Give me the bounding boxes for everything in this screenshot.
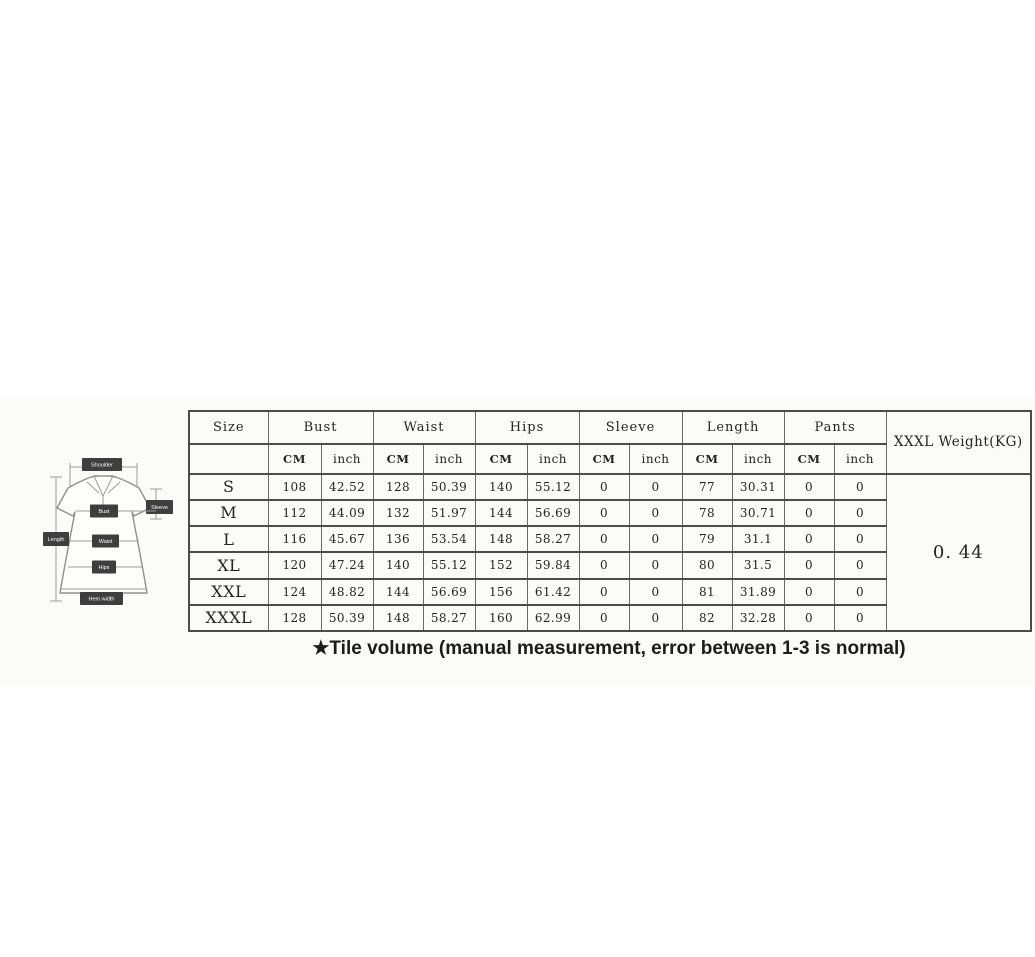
measurement-cell: 32.28 — [732, 605, 784, 631]
length-label: Length — [48, 537, 65, 543]
measurement-cell: 0 — [784, 526, 834, 552]
measurement-cell: 48.82 — [321, 579, 373, 605]
measurement-cell: 140 — [475, 474, 527, 500]
measurement-cell: 0 — [629, 500, 682, 526]
measurement-cell: 148 — [373, 605, 423, 631]
measurement-cell: 81 — [682, 579, 732, 605]
unit-header-cm: CM — [579, 444, 629, 473]
unit-header-inch: inch — [321, 444, 373, 473]
measurement-cell: 82 — [682, 605, 732, 631]
col-header-hips: Hips — [475, 411, 579, 444]
hem-label: Hem width — [89, 596, 115, 602]
unit-header-inch: inch — [732, 444, 784, 473]
measurement-cell: 0 — [579, 552, 629, 578]
col-header-weight: XXXL Weight(KG) — [886, 411, 1031, 474]
measurement-cell: 132 — [373, 500, 423, 526]
measurement-cell: 128 — [373, 474, 423, 500]
size-label: L — [189, 526, 268, 552]
measurement-cell: 59.84 — [527, 552, 579, 578]
measurement-cell: 112 — [268, 500, 321, 526]
measurement-cell: 0 — [629, 552, 682, 578]
col-header-waist: Waist — [373, 411, 475, 444]
header-row-groups: Size Bust Waist Hips Sleeve Length Pants… — [189, 411, 1031, 444]
measurement-cell: 0 — [579, 500, 629, 526]
unit-header-inch: inch — [423, 444, 475, 473]
measurement-cell: 79 — [682, 526, 732, 552]
measurement-cell: 56.69 — [527, 500, 579, 526]
unit-header-inch: inch — [629, 444, 682, 473]
size-label: XXL — [189, 579, 268, 605]
col-header-size: Size — [189, 411, 268, 444]
measurement-cell: 140 — [373, 552, 423, 578]
measurement-cell: 58.27 — [423, 605, 475, 631]
measurement-note: ★Tile volume (manual measurement, error … — [188, 637, 1030, 660]
size-label: XL — [189, 552, 268, 578]
measurement-cell: 51.97 — [423, 500, 475, 526]
measurement-cell: 62.99 — [527, 605, 579, 631]
unit-header-inch: inch — [527, 444, 579, 473]
measurement-cell: 152 — [475, 552, 527, 578]
measurement-cell: 0 — [629, 526, 682, 552]
unit-header-cm: CM — [373, 444, 423, 473]
measurement-cell: 0 — [834, 552, 886, 578]
empty-cell — [189, 444, 268, 473]
measurement-cell: 45.67 — [321, 526, 373, 552]
measurement-cell: 78 — [682, 500, 732, 526]
measurement-cell: 0 — [834, 605, 886, 631]
measurement-cell: 31.1 — [732, 526, 784, 552]
measurement-cell: 144 — [475, 500, 527, 526]
col-header-sleeve: Sleeve — [579, 411, 682, 444]
measurement-cell: 0 — [784, 579, 834, 605]
measurement-cell: 148 — [475, 526, 527, 552]
table-row-s: S 108 42.52 128 50.39 140 55.12 0 0 77 3… — [189, 474, 1031, 500]
col-header-pants: Pants — [784, 411, 886, 444]
measurement-cell: 30.71 — [732, 500, 784, 526]
measurement-cell: 0 — [784, 552, 834, 578]
measurement-cell: 0 — [834, 500, 886, 526]
measurement-cell: 128 — [268, 605, 321, 631]
size-label: S — [189, 474, 268, 500]
size-label: XXXL — [189, 605, 268, 631]
measurement-cell: 0 — [579, 579, 629, 605]
measurement-cell: 55.12 — [527, 474, 579, 500]
garment-diagram: Shoulder Length Sleeve Bust Waist Hips — [40, 443, 185, 621]
unit-header-cm: CM — [475, 444, 527, 473]
measurement-cell: 0 — [784, 500, 834, 526]
measurement-cell: 120 — [268, 552, 321, 578]
measurement-cell: 58.27 — [527, 526, 579, 552]
measurement-cell: 116 — [268, 526, 321, 552]
size-chart-page: Shoulder Length Sleeve Bust Waist Hips — [0, 0, 1035, 957]
bust-label: Bust — [98, 509, 109, 515]
size-chart-table: Size Bust Waist Hips Sleeve Length Pants… — [188, 410, 1032, 632]
measurement-cell: 50.39 — [321, 605, 373, 631]
dress-figure: Shoulder Length Sleeve Bust Waist Hips — [40, 443, 185, 621]
measurement-cell: 0 — [784, 605, 834, 631]
measurement-cell: 0 — [579, 526, 629, 552]
measurement-cell: 0 — [579, 605, 629, 631]
shoulder-label: Shoulder — [91, 462, 113, 468]
measurement-cell: 42.52 — [321, 474, 373, 500]
measurement-cell: 144 — [373, 579, 423, 605]
measurement-cell: 56.69 — [423, 579, 475, 605]
measurement-cell: 47.24 — [321, 552, 373, 578]
measurement-cell: 31.89 — [732, 579, 784, 605]
unit-header-cm: CM — [682, 444, 732, 473]
unit-header-cm: CM — [268, 444, 321, 473]
weight-value-cell: 0. 44 — [886, 474, 1031, 631]
measurement-cell: 0 — [834, 579, 886, 605]
measurement-cell: 108 — [268, 474, 321, 500]
measurement-cell: 61.42 — [527, 579, 579, 605]
hips-label: Hips — [98, 565, 109, 571]
measurement-cell: 124 — [268, 579, 321, 605]
measurement-cell: 160 — [475, 605, 527, 631]
unit-header-cm: CM — [784, 444, 834, 473]
sleeve-label: Sleeve — [151, 505, 168, 511]
measurement-cell: 31.5 — [732, 552, 784, 578]
measurement-cell: 77 — [682, 474, 732, 500]
measurement-cell: 44.09 — [321, 500, 373, 526]
waist-label: Waist — [99, 539, 113, 545]
measurement-cell: 0 — [784, 474, 834, 500]
measurement-cell: 0 — [629, 474, 682, 500]
measurement-cell: 0 — [579, 474, 629, 500]
col-header-bust: Bust — [268, 411, 373, 444]
col-header-length: Length — [682, 411, 784, 444]
measurement-cell: 53.54 — [423, 526, 475, 552]
measurement-cell: 30.31 — [732, 474, 784, 500]
measurement-cell: 0 — [834, 474, 886, 500]
size-label: M — [189, 500, 268, 526]
measurement-cell: 80 — [682, 552, 732, 578]
measurement-cell: 55.12 — [423, 552, 475, 578]
measurement-cell: 156 — [475, 579, 527, 605]
measurement-cell: 136 — [373, 526, 423, 552]
measurement-cell: 0 — [629, 605, 682, 631]
unit-header-inch: inch — [834, 444, 886, 473]
measurement-cell: 50.39 — [423, 474, 475, 500]
measurement-cell: 0 — [834, 526, 886, 552]
measurement-cell: 0 — [629, 579, 682, 605]
